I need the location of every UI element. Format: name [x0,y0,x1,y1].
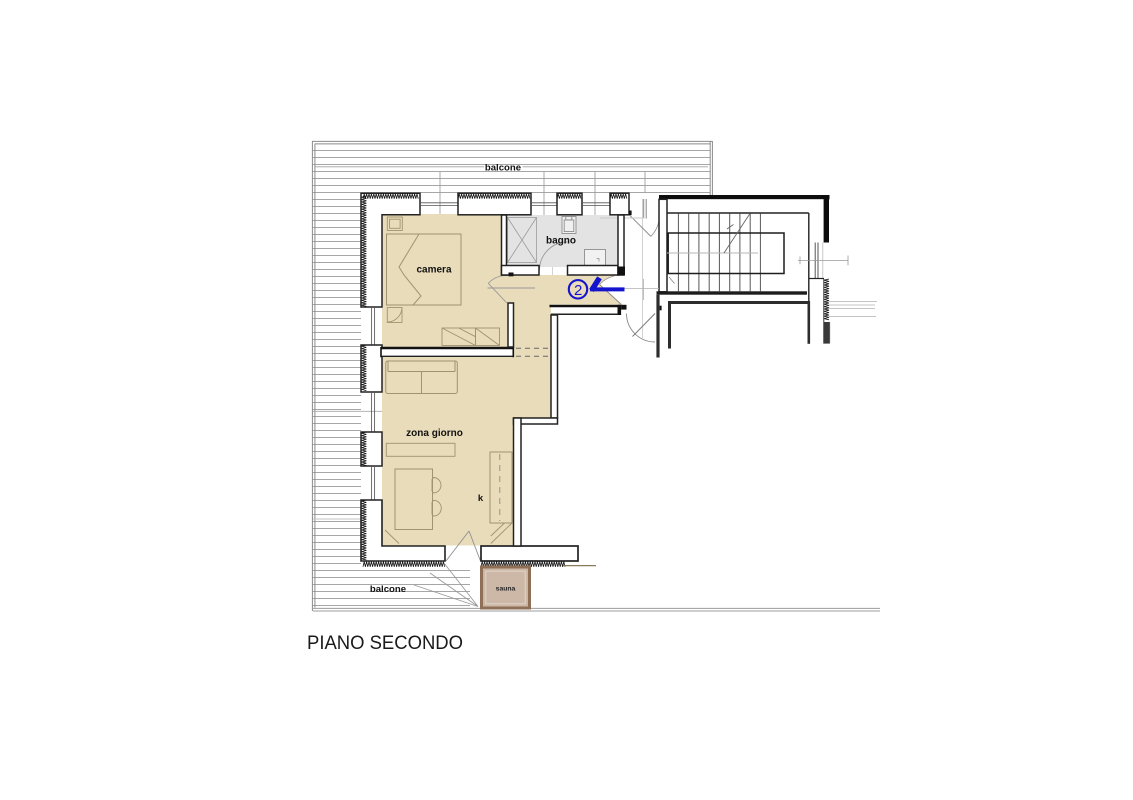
svg-text:bagno: bagno [546,236,576,247]
svg-text:zona giorno: zona giorno [406,428,463,439]
svg-text:camera: camera [416,265,451,276]
svg-text:balcone: balcone [485,163,521,174]
svg-text:balcone: balcone [370,584,406,595]
svg-text:2: 2 [574,282,582,299]
svg-text:PIANO SECONDO: PIANO SECONDO [307,632,463,654]
svg-text:k: k [478,493,484,504]
svg-text:sauna: sauna [496,586,516,593]
